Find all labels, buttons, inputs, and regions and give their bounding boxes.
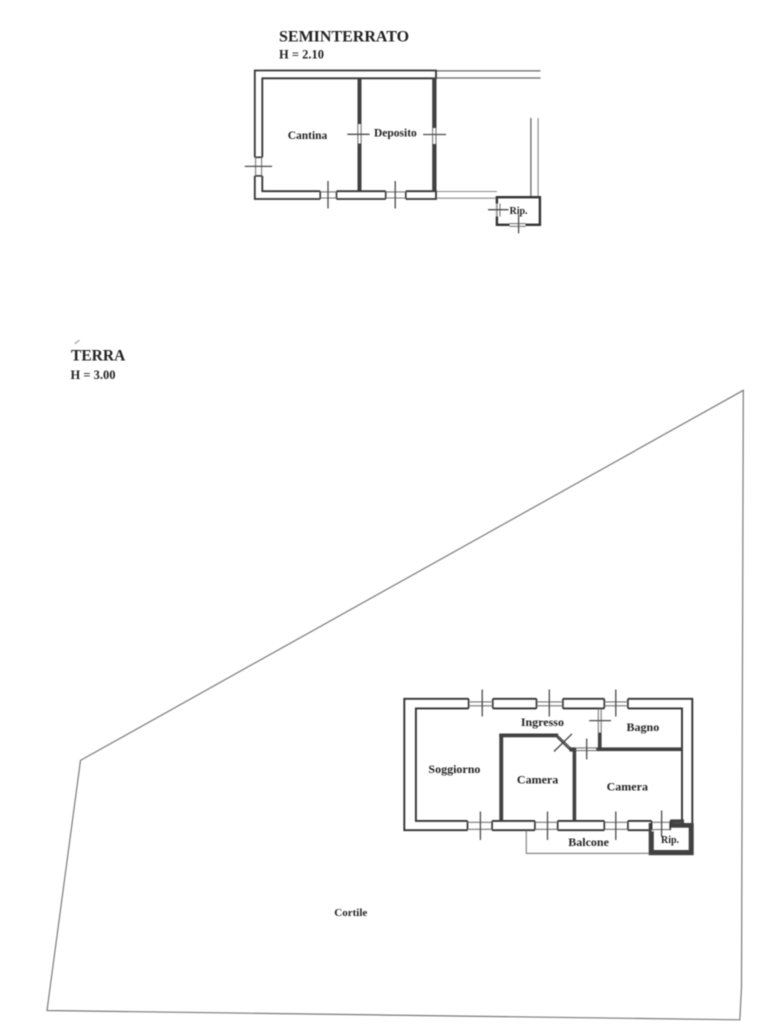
svg-text:Deposito: Deposito — [374, 127, 417, 139]
svg-text:SEMINTERRATO: SEMINTERRATO — [279, 28, 409, 45]
svg-text:Soggiorno: Soggiorno — [428, 762, 480, 776]
svg-text:Cantina: Cantina — [288, 130, 328, 142]
svg-text:Camera: Camera — [607, 779, 648, 793]
svg-text:Camera: Camera — [517, 773, 558, 787]
svg-text:Ingresso: Ingresso — [521, 715, 564, 729]
svg-text:Cortile: Cortile — [334, 907, 367, 919]
svg-text:Bagno: Bagno — [627, 720, 660, 734]
svg-text:Rip.: Rip. — [661, 835, 680, 846]
svg-text:Balcone: Balcone — [568, 835, 609, 849]
svg-text:Rip.: Rip. — [509, 206, 528, 217]
svg-text:H = 2.10: H = 2.10 — [279, 48, 324, 62]
svg-text:TERRA: TERRA — [71, 347, 126, 364]
svg-text:H = 3.00: H = 3.00 — [71, 368, 116, 382]
